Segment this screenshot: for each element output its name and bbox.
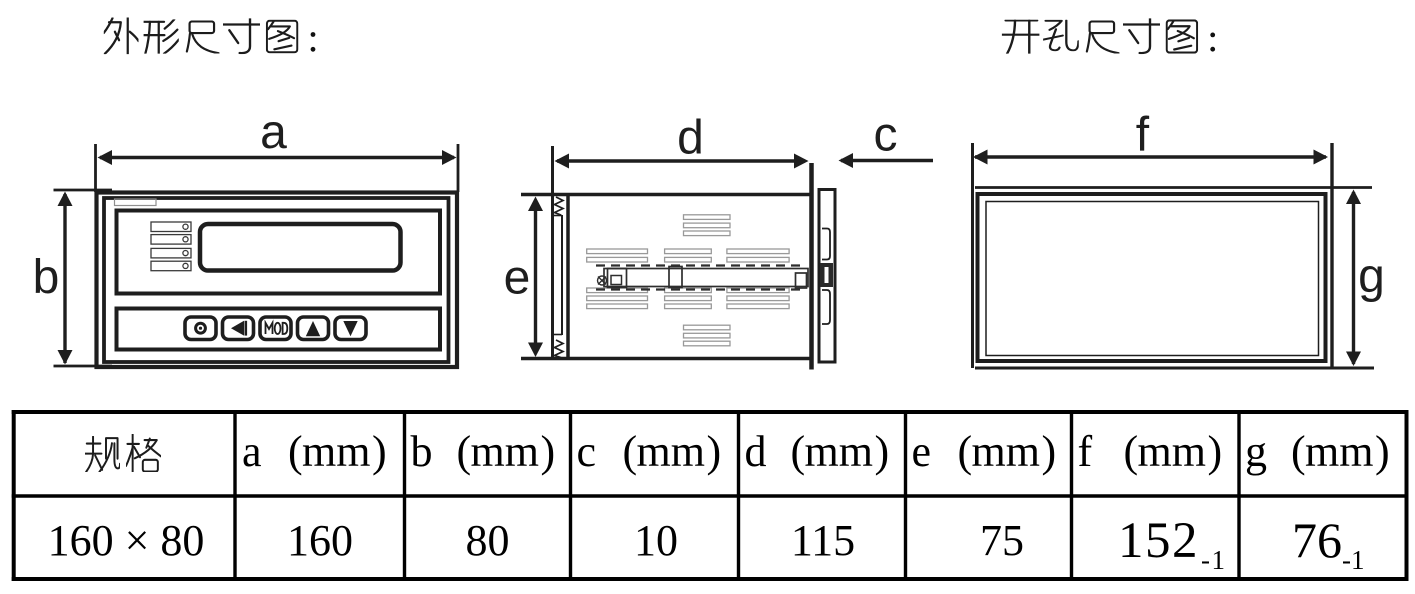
svg-text:152-1: 152-1 xyxy=(1118,513,1227,575)
svg-text:d(mm): d(mm) xyxy=(745,427,890,476)
svg-text:c(mm): c(mm) xyxy=(577,427,722,476)
svg-text:f: f xyxy=(1136,108,1150,161)
svg-text:b(mm): b(mm) xyxy=(411,427,556,476)
svg-text:10: 10 xyxy=(634,516,678,565)
svg-text:d: d xyxy=(677,112,704,165)
svg-text:76-1: 76-1 xyxy=(1292,512,1365,575)
svg-text:160: 160 xyxy=(287,516,353,565)
svg-text:160 × 80: 160 × 80 xyxy=(48,516,205,565)
svg-text:g(mm): g(mm) xyxy=(1245,427,1390,476)
svg-text:c: c xyxy=(874,109,898,162)
svg-text:a(mm): a(mm) xyxy=(242,427,387,476)
svg-text:80: 80 xyxy=(466,516,510,565)
svg-text:75: 75 xyxy=(980,516,1024,565)
svg-text:115: 115 xyxy=(791,516,855,565)
svg-text:e: e xyxy=(504,252,531,305)
svg-text:b: b xyxy=(33,251,60,304)
svg-text:f(mm): f(mm) xyxy=(1078,427,1223,476)
svg-text:a: a xyxy=(260,106,287,159)
svg-text:e(mm): e(mm) xyxy=(912,427,1057,476)
svg-text:g: g xyxy=(1358,250,1385,303)
